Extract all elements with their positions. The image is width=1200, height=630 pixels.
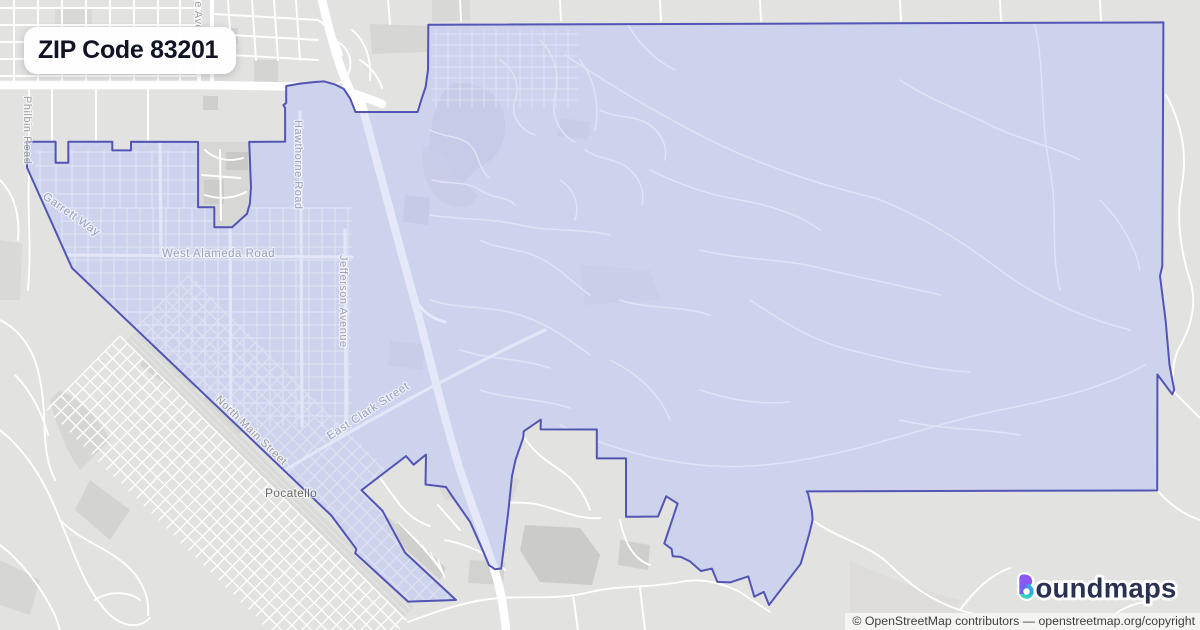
svg-text:West Alameda Road: West Alameda Road: [162, 248, 275, 260]
svg-text:Philbin Road: Philbin Road: [21, 96, 33, 164]
svg-text:Hawthorne Road: Hawthorne Road: [292, 120, 304, 210]
svg-text:Pocatello: Pocatello: [265, 486, 317, 500]
svg-text:Jefferson Avenue: Jefferson Avenue: [337, 255, 349, 348]
svg-text:oundmaps: oundmaps: [1036, 573, 1177, 604]
